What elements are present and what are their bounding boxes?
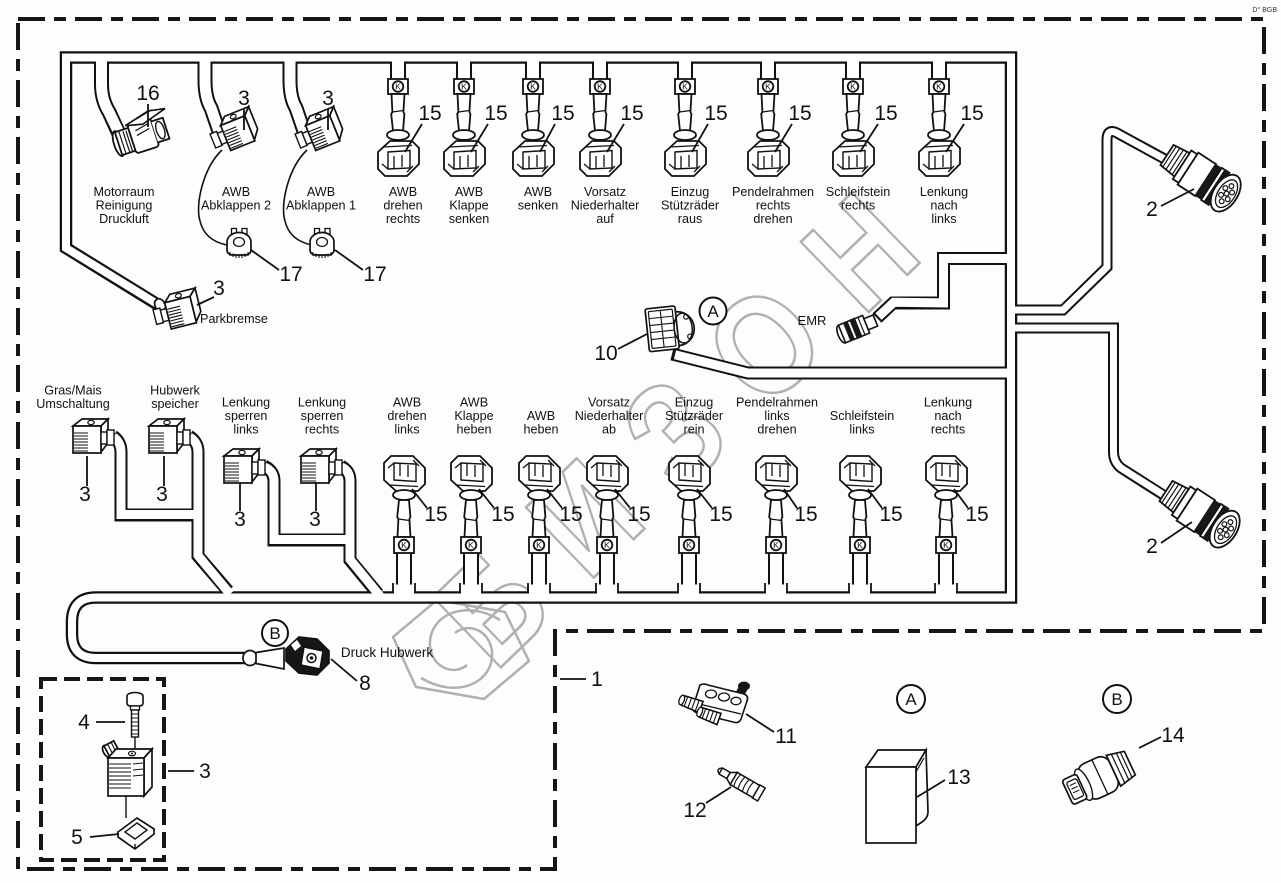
svg-text:K: K [461, 82, 467, 92]
svg-text:B: B [269, 624, 280, 643]
svg-text:K: K [765, 82, 771, 92]
svg-text:17: 17 [363, 263, 386, 286]
svg-text:16: 16 [136, 82, 159, 105]
svg-text:15: 15 [627, 503, 650, 526]
svg-text:K: K [536, 540, 542, 550]
svg-text:K: K [686, 540, 692, 550]
svg-text:MotorraumReinigungDruckluft: MotorraumReinigungDruckluft [94, 185, 155, 226]
svg-text:15: 15 [491, 503, 514, 526]
svg-text:1: 1 [591, 668, 603, 691]
svg-text:3: 3 [213, 277, 225, 300]
svg-text:Hubwerkspeicher: Hubwerkspeicher [150, 384, 200, 412]
svg-text:K: K [682, 82, 688, 92]
svg-text:2: 2 [1146, 535, 1158, 558]
svg-text:K: K [943, 540, 949, 550]
svg-text:A: A [707, 302, 719, 321]
svg-text:15: 15 [551, 102, 574, 125]
svg-text:15: 15 [874, 102, 897, 125]
svg-text:5: 5 [71, 826, 83, 849]
svg-text:2: 2 [1146, 198, 1158, 221]
svg-text:Gras/MaisUmschaltung: Gras/MaisUmschaltung [36, 384, 110, 412]
svg-text:15: 15 [794, 503, 817, 526]
svg-text:AWBdrehenrechts: AWBdrehenrechts [383, 185, 422, 226]
svg-text:3: 3 [79, 483, 91, 506]
svg-text:Lenkungsperrenrechts: Lenkungsperrenrechts [298, 396, 346, 437]
svg-text:15: 15 [788, 102, 811, 125]
svg-text:D° BGB: D° BGB [1252, 6, 1277, 14]
svg-text:8: 8 [359, 672, 371, 695]
svg-text:4: 4 [78, 711, 90, 734]
svg-text:3: 3 [322, 87, 334, 110]
svg-text:AWBheben: AWBheben [523, 409, 558, 437]
svg-text:3: 3 [234, 508, 246, 531]
svg-text:K: K [401, 540, 407, 550]
svg-text:K: K [468, 540, 474, 550]
svg-text:3: 3 [156, 483, 168, 506]
svg-text:17: 17 [279, 263, 302, 286]
svg-text:15: 15 [965, 503, 988, 526]
svg-text:15: 15 [704, 102, 727, 125]
svg-text:K: K [857, 540, 863, 550]
svg-text:3: 3 [199, 760, 211, 783]
svg-text:12: 12 [683, 799, 706, 822]
svg-text:15: 15 [484, 102, 507, 125]
svg-text:3: 3 [309, 508, 321, 531]
svg-text:K: K [936, 82, 942, 92]
svg-text:13: 13 [947, 766, 970, 789]
svg-text:Parkbremse: Parkbremse [200, 312, 268, 326]
svg-text:10: 10 [594, 342, 617, 365]
svg-text:Druck Hubwerk: Druck Hubwerk [341, 645, 434, 660]
svg-text:15: 15 [559, 503, 582, 526]
svg-text:15: 15 [879, 503, 902, 526]
svg-text:15: 15 [960, 102, 983, 125]
svg-text:15: 15 [620, 102, 643, 125]
svg-text:B: B [1111, 690, 1122, 709]
svg-text:3: 3 [238, 87, 250, 110]
svg-text:15: 15 [709, 503, 732, 526]
svg-text:15: 15 [424, 503, 447, 526]
svg-text:K: K [597, 82, 603, 92]
svg-text:K: K [395, 82, 401, 92]
svg-text:15: 15 [418, 102, 441, 125]
svg-text:A: A [905, 690, 917, 709]
svg-text:K: K [850, 82, 856, 92]
svg-text:K: K [773, 540, 779, 550]
svg-text:EMR: EMR [798, 313, 827, 328]
svg-text:14: 14 [1161, 724, 1185, 747]
svg-text:AWBKlappeheben: AWBKlappeheben [454, 396, 493, 437]
svg-text:11: 11 [775, 725, 797, 748]
svg-text:K: K [530, 82, 536, 92]
svg-text:K: K [604, 540, 610, 550]
